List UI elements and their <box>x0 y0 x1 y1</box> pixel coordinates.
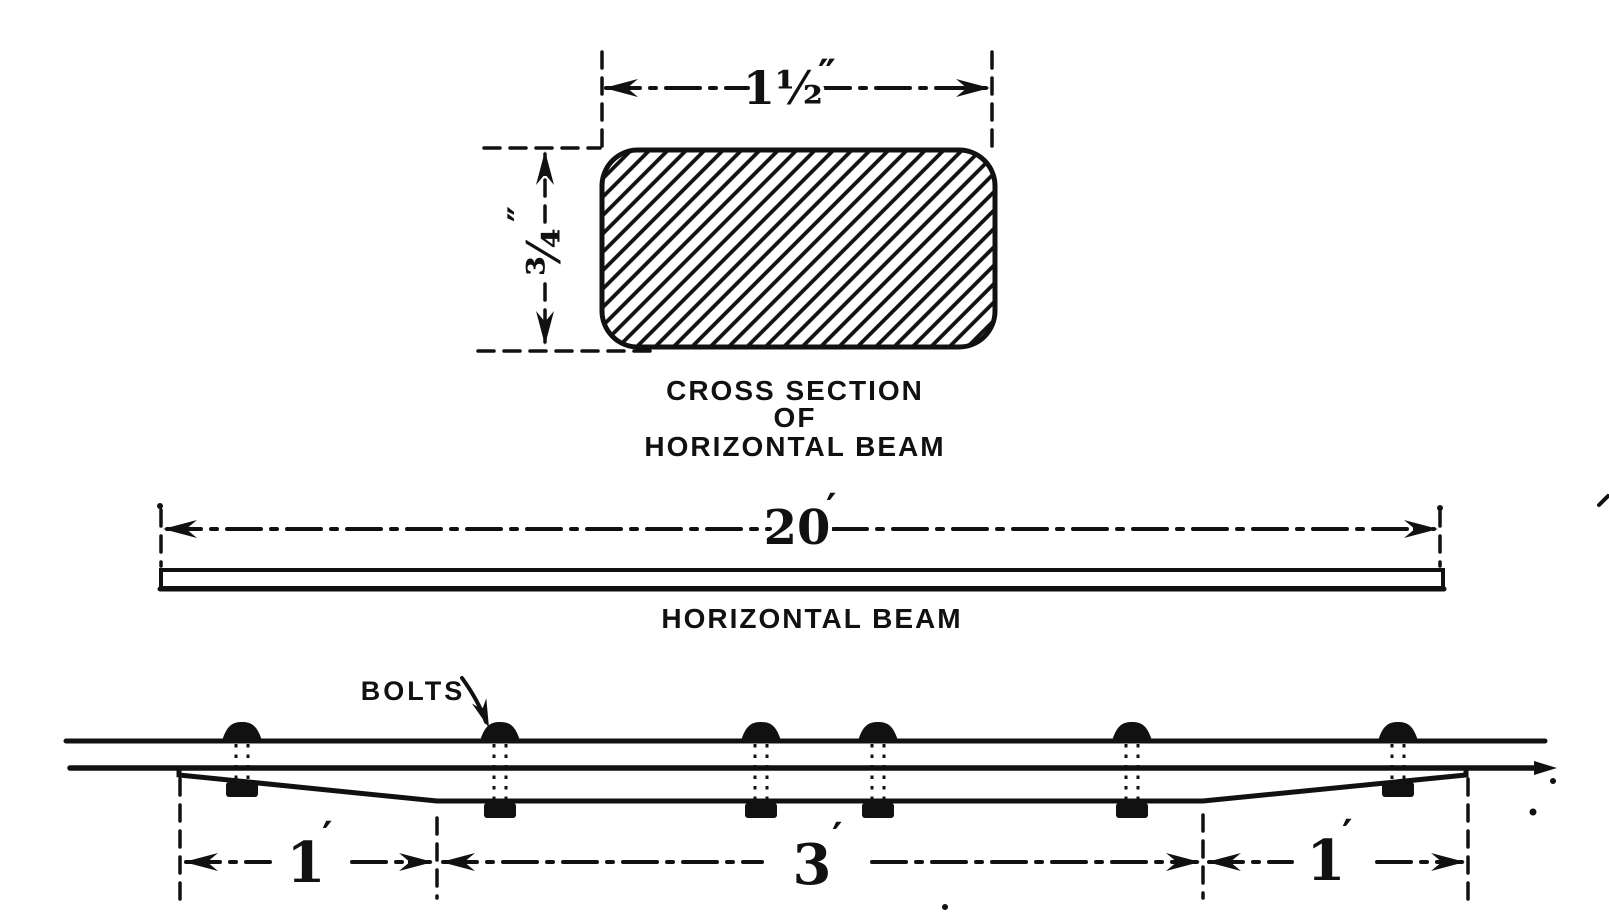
section-width-unit: ″ <box>818 51 836 98</box>
cross-section-view: 1½ ″ ¾ ″ CROSS SECTION OF HORIZONTAL BEA… <box>478 51 995 462</box>
ink-speck <box>1550 778 1556 784</box>
bolt-nut <box>862 803 894 818</box>
bolt-head <box>741 722 781 741</box>
section-height-value: ¾ <box>517 228 571 276</box>
bolt-head <box>1112 722 1152 741</box>
beam-side-outline <box>161 570 1443 588</box>
arrowhead-icon <box>1404 520 1438 538</box>
bolt-head <box>480 722 520 741</box>
beam-cross-section <box>602 150 995 347</box>
bolt-nut <box>745 803 777 818</box>
beam-length-unit: ′ <box>826 485 837 532</box>
beam-side-view: 20 ′ HORIZONTAL BEAM <box>157 485 1608 634</box>
ink-speck <box>1599 496 1608 505</box>
dimension-dot <box>157 503 163 509</box>
ink-speck <box>1530 809 1537 816</box>
arrowhead-icon <box>399 853 433 871</box>
bolt-head <box>858 722 898 741</box>
left-dim-value: 1 <box>287 830 326 896</box>
bolt-head <box>222 722 262 741</box>
bolt-head <box>1378 722 1418 741</box>
bolt-nut <box>484 803 516 818</box>
section-height-label: ¾ ″ <box>501 206 571 276</box>
caption-line: HORIZONTAL BEAM <box>644 431 945 462</box>
section-width-value: 1½ <box>743 61 823 115</box>
right-dim-unit: ′ <box>1342 811 1353 858</box>
middle-dim-unit: ′ <box>832 814 843 861</box>
side-view-caption: HORIZONTAL BEAM <box>661 603 962 634</box>
bolt <box>1378 722 1418 797</box>
bolts-label: BOLTS <box>361 676 466 706</box>
section-caption: CROSS SECTION OF HORIZONTAL BEAM <box>644 375 945 462</box>
drawing-page: 1½ ″ ¾ ″ CROSS SECTION OF HORIZONTAL BEA… <box>0 0 1609 912</box>
ink-speck <box>942 904 948 910</box>
bolt-nut <box>1382 782 1414 797</box>
section-height-unit: ″ <box>501 206 543 222</box>
middle-dim-value: 3 <box>793 832 832 898</box>
bolt-nut <box>1116 803 1148 818</box>
technical-drawing: 1½ ″ ¾ ″ CROSS SECTION OF HORIZONTAL BEA… <box>0 0 1609 912</box>
right-dim-value: 1 <box>1307 828 1346 894</box>
left-dim-unit: ′ <box>322 813 333 860</box>
line-end-tip <box>1534 761 1557 775</box>
caption-line: OF <box>774 402 817 433</box>
bolt-assembly-view: BOLTS 1 ′ 3 ′ 1 ′ <box>66 676 1557 910</box>
beam-length-value: 20 <box>764 500 831 556</box>
tapered-strip <box>179 770 1466 801</box>
bolt <box>222 722 262 797</box>
bolt-nut <box>226 782 258 797</box>
